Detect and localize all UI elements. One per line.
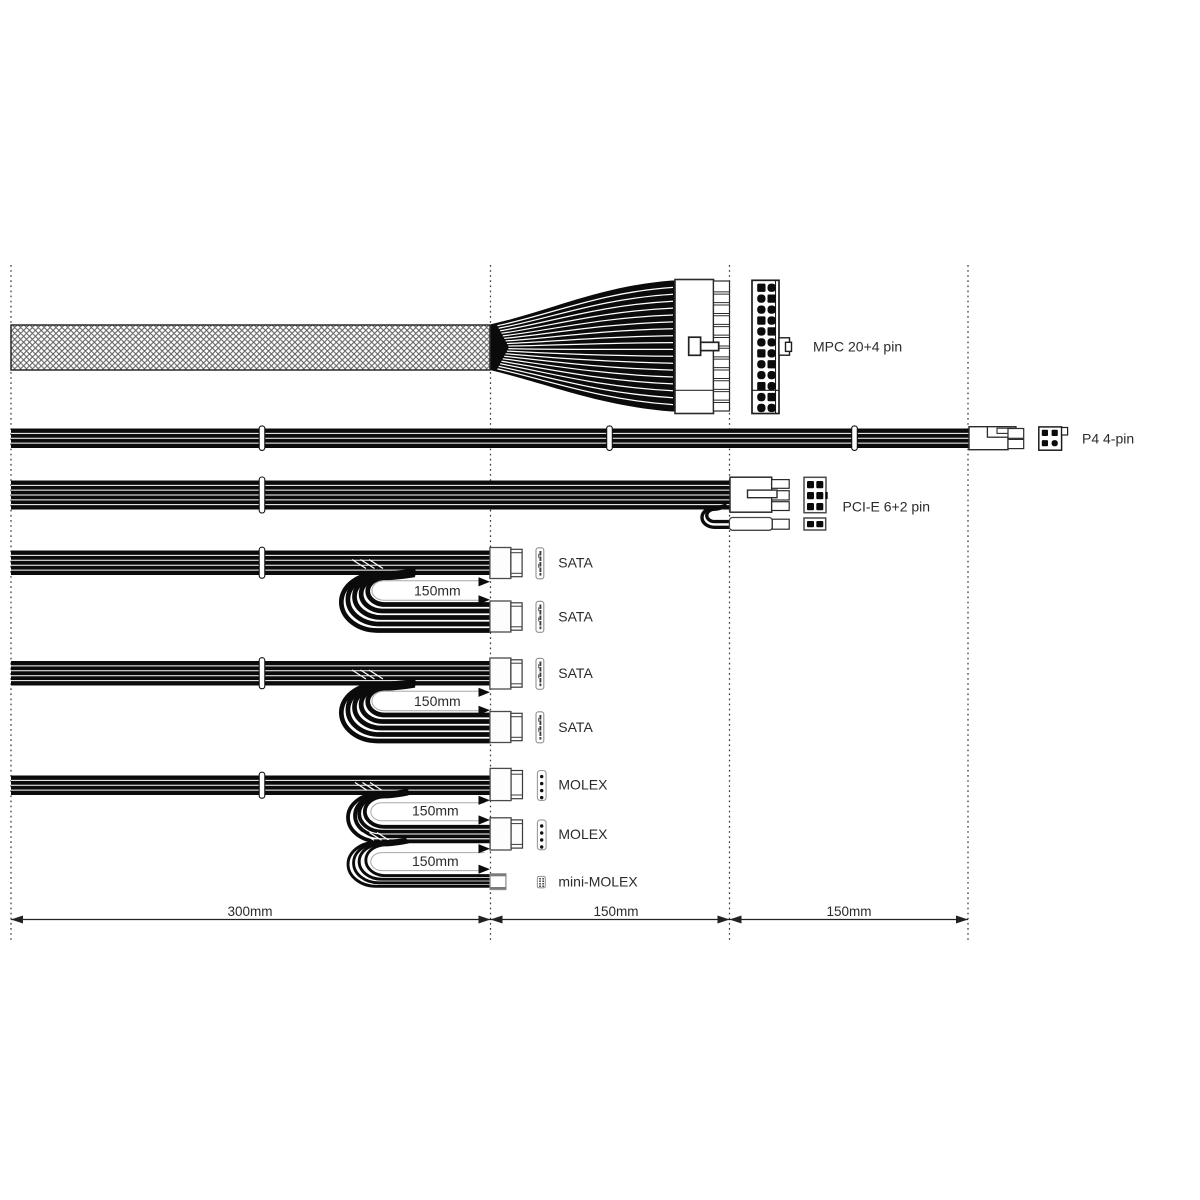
svg-text:150mm: 150mm bbox=[412, 853, 459, 869]
svg-text:MOLEX: MOLEX bbox=[558, 776, 608, 792]
svg-text:150mm: 150mm bbox=[412, 803, 459, 819]
svg-text:150mm: 150mm bbox=[593, 904, 638, 919]
svg-text:PCI-E 6+2 pin: PCI-E 6+2 pin bbox=[843, 499, 931, 515]
svg-text:mini-MOLEX: mini-MOLEX bbox=[558, 873, 638, 889]
svg-text:SATA: SATA bbox=[558, 554, 593, 570]
svg-text:MOLEX: MOLEX bbox=[558, 826, 608, 842]
svg-text:SATA: SATA bbox=[558, 719, 593, 735]
svg-text:MPC 20+4 pin: MPC 20+4 pin bbox=[813, 339, 902, 355]
svg-text:150mm: 150mm bbox=[414, 693, 461, 709]
svg-text:150mm: 150mm bbox=[414, 582, 461, 598]
svg-text:P4 4-pin: P4 4-pin bbox=[1082, 431, 1134, 447]
svg-text:300mm: 300mm bbox=[227, 904, 272, 919]
svg-text:SATA: SATA bbox=[558, 608, 593, 624]
svg-text:150mm: 150mm bbox=[826, 904, 871, 919]
svg-text:SATA: SATA bbox=[558, 665, 593, 681]
